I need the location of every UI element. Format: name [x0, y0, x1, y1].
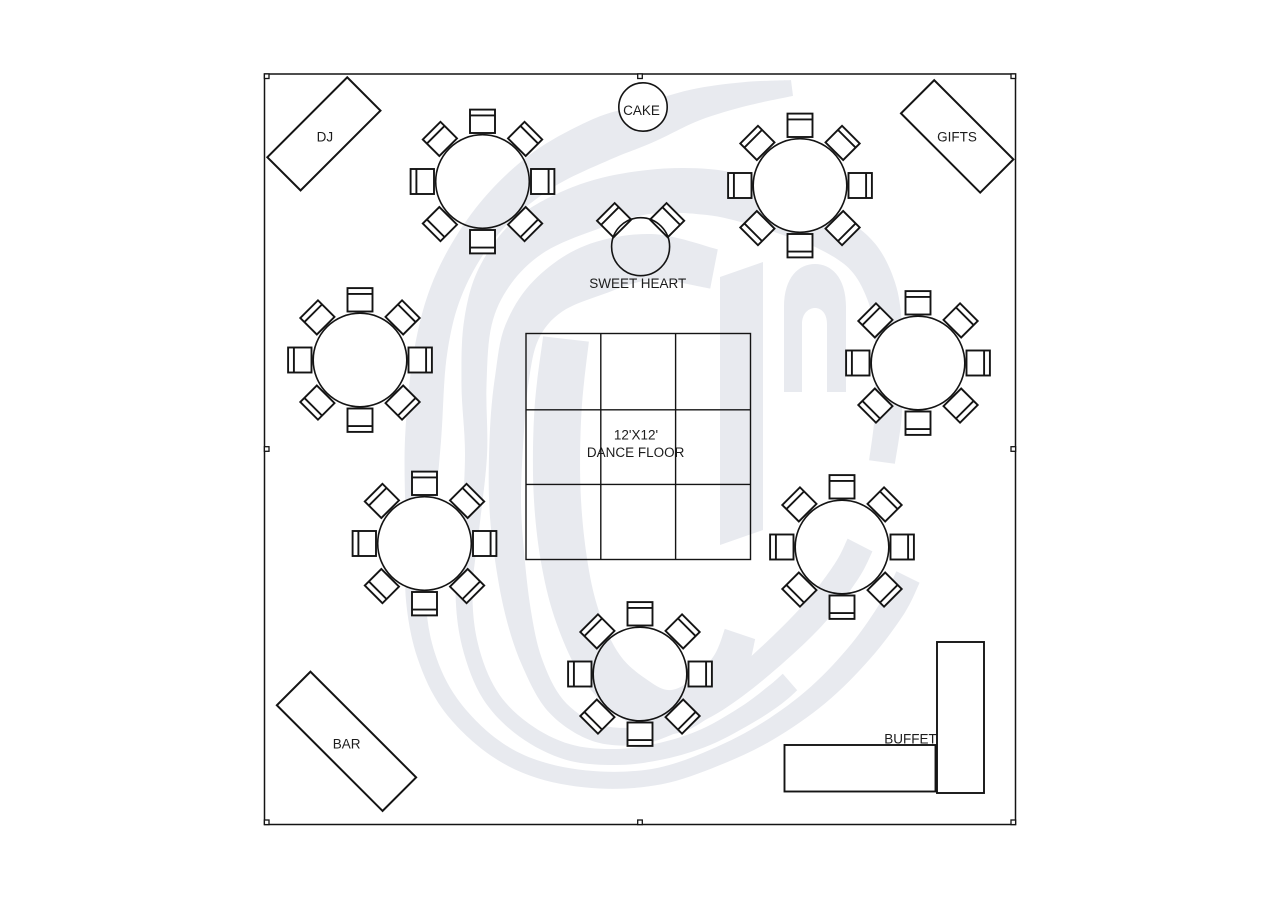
svg-text:SWEET HEART: SWEET HEART — [589, 276, 686, 291]
svg-text:BUFFET: BUFFET — [884, 732, 937, 747]
svg-text:CAKE: CAKE — [623, 103, 660, 118]
svg-text:GIFTS: GIFTS — [937, 129, 977, 144]
svg-text:DJ: DJ — [317, 130, 334, 145]
svg-text:BAR: BAR — [333, 737, 361, 752]
svg-text:DANCE FLOOR: DANCE FLOOR — [587, 445, 685, 460]
svg-text:12'X12': 12'X12' — [614, 428, 658, 443]
